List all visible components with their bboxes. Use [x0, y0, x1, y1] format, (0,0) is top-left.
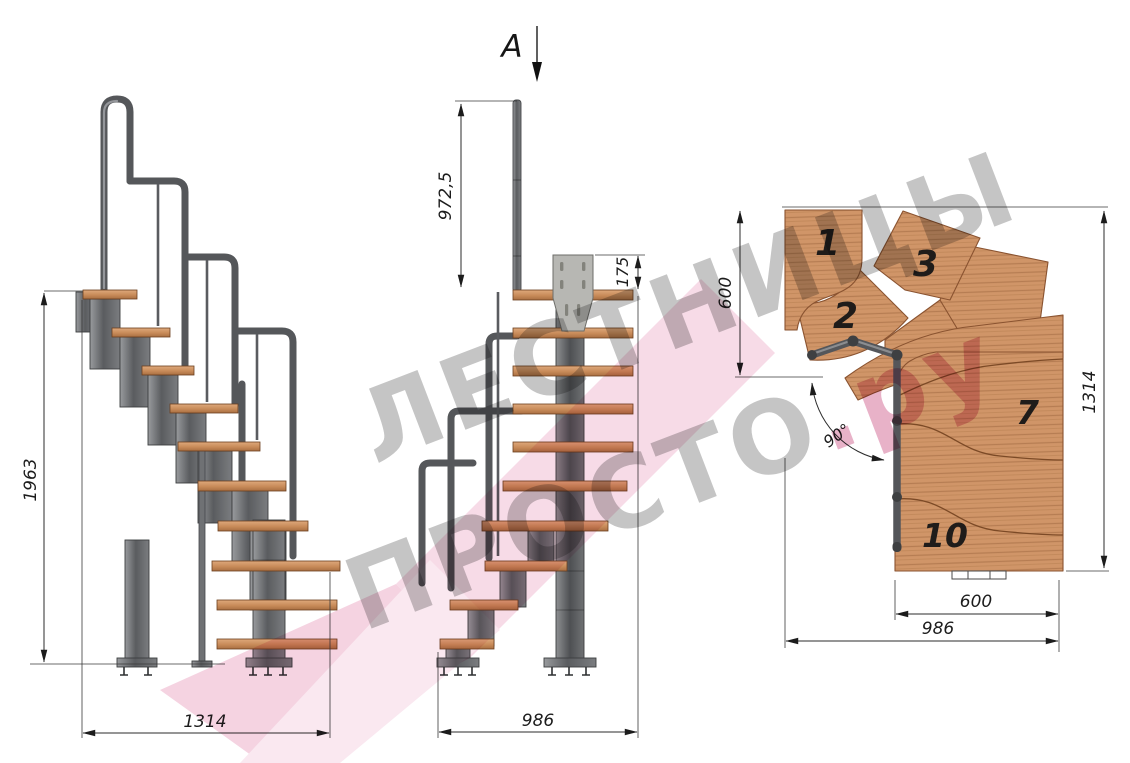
- section-marker: A: [499, 26, 542, 82]
- section-label: A: [499, 29, 522, 65]
- thin-newel-pole: [199, 447, 205, 666]
- technical-drawing-page: 1963 1314 A: [0, 0, 1130, 763]
- plan-foot-plate: [952, 571, 1006, 579]
- handrail-post: [513, 100, 521, 292]
- base-flange: [117, 658, 157, 667]
- dim-post-height: 972,5: [436, 172, 456, 221]
- section-arrow-icon: [532, 62, 542, 82]
- step-number-10: 10: [922, 516, 968, 555]
- dim-stair-width: 986: [522, 711, 555, 731]
- dim-plan-depth: 1314: [1080, 370, 1100, 413]
- step-number-7: 7: [1016, 393, 1039, 432]
- dim-total-width: 986: [922, 619, 955, 639]
- dim-tread-width: 600: [960, 592, 992, 612]
- dim-total-height: 1963: [21, 458, 41, 501]
- staircase-drawing: 1963 1314 A: [0, 0, 1130, 763]
